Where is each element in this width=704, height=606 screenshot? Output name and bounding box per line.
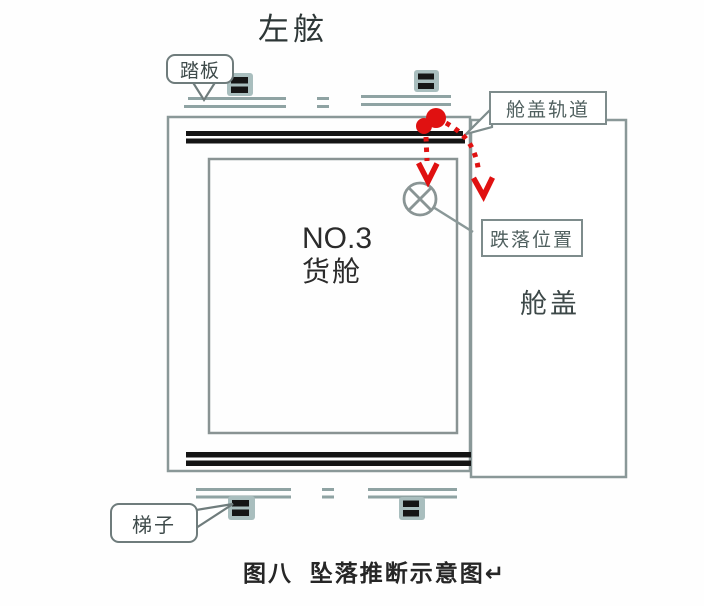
fall-start-marker: [416, 108, 446, 134]
deck-edge-lines-top: [184, 97, 451, 107]
ladder-icon-bottom-left: [228, 496, 255, 520]
fall-position-connector-line: [433, 207, 473, 232]
ladder-icon-top-right: [414, 70, 439, 92]
fall-position-callout-text: 跌落位置: [490, 225, 574, 252]
fall-point-marker-icon: [404, 183, 436, 215]
deck-edge-lines-bottom: [196, 490, 457, 498]
fall-inference-diagram: 左舷 NO.3 货舱 舱盖 踏板 舱盖轨道 跌落位置 梯子 图八 坠落推断示意图…: [0, 0, 704, 606]
pedal-callout-text: 踏板: [180, 56, 220, 83]
figure-caption: 图八 坠落推断示意图↵: [243, 554, 506, 588]
ladder-callout: 梯子: [110, 503, 198, 543]
port-side-title: 左舷: [238, 4, 348, 49]
ladder-callout-tail: [196, 504, 233, 528]
pedal-callout: 踏板: [166, 54, 234, 84]
cargo-hold-number: NO.3: [302, 222, 372, 255]
hatch-cover-label: 舱盖: [520, 282, 580, 321]
hatch-rail-callout: 舱盖轨道: [489, 91, 607, 125]
ladder-icon-bottom-right: [399, 497, 425, 520]
ladder-callout-text: 梯子: [132, 509, 176, 538]
cargo-hold-label: NO.3 货舱: [302, 222, 372, 288]
hatch-rail-bottom: [186, 452, 471, 466]
cargo-hold-text: 货舱: [302, 255, 372, 288]
fall-position-callout: 跌落位置: [481, 219, 583, 257]
hatch-rail-callout-text: 舱盖轨道: [506, 95, 590, 122]
